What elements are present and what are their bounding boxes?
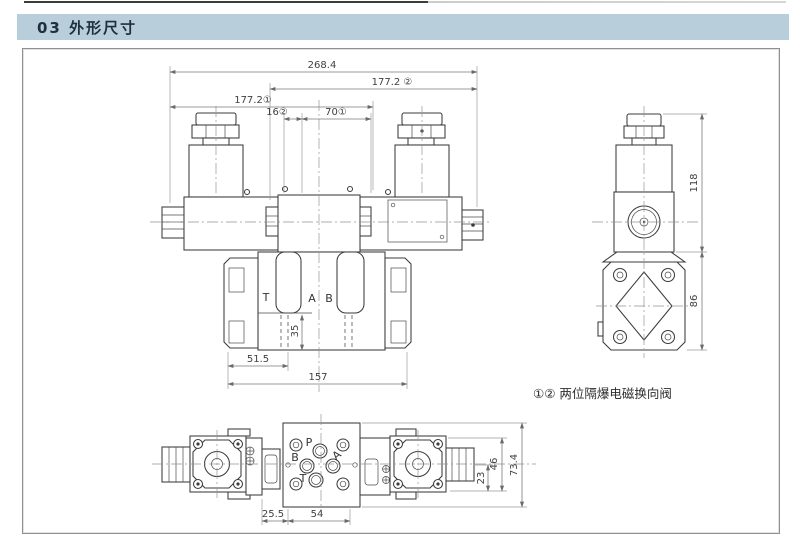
- dim-54: 54: [311, 509, 324, 520]
- page-header-bar: 03 外形尺寸: [17, 14, 789, 40]
- front-port-b-label: B: [325, 292, 333, 305]
- dim-70: 70①: [325, 107, 347, 118]
- dim-177-2-2: 177.2 ②: [372, 77, 413, 88]
- dim-35: 35: [290, 325, 301, 338]
- front-port-a-label: A: [308, 292, 316, 305]
- technical-drawing-svg: T A B: [22, 48, 780, 534]
- dim-23: 23: [476, 472, 487, 485]
- top-rule: [24, 1, 786, 3]
- dim-177-2-1: 177.2①: [234, 95, 272, 106]
- front-port-t-label: T: [262, 291, 270, 304]
- side-view: [598, 114, 685, 350]
- bottom-port-b-label: B: [291, 451, 299, 464]
- page-title: 03 外形尺寸: [37, 17, 137, 38]
- dim-157: 157: [308, 372, 327, 383]
- dim-86: 86: [689, 295, 700, 308]
- dim-46: 46: [489, 458, 500, 471]
- bottom-port-p-label: P: [306, 436, 313, 449]
- dim-51-5: 51.5: [247, 354, 269, 365]
- dim-16: 16②: [266, 107, 288, 118]
- dim-73-4: 73.4: [509, 454, 520, 476]
- bottom-port-t-label: T: [299, 472, 307, 485]
- dim-25-5: 25.5: [262, 509, 284, 520]
- page: { "page": { "header_title": "03 外形尺寸" },…: [0, 0, 800, 543]
- dim-268-4: 268.4: [308, 60, 337, 71]
- bottom-view: P B T A: [162, 423, 474, 507]
- front-subplate: T A B: [224, 252, 411, 350]
- drawing-caption: ①② 两位隔爆电磁换向阀: [533, 386, 672, 401]
- dim-118: 118: [689, 173, 700, 192]
- front-view: T A B: [162, 113, 483, 350]
